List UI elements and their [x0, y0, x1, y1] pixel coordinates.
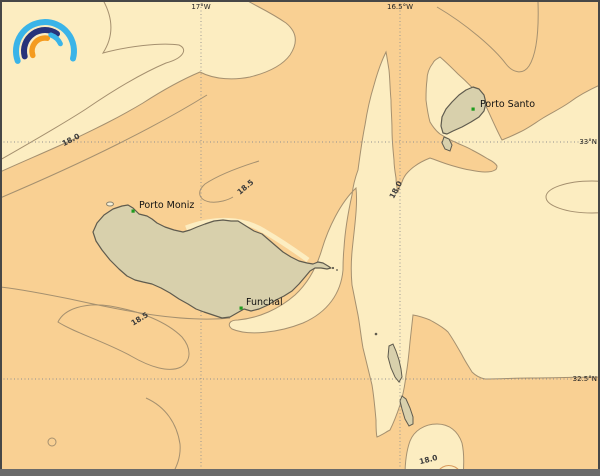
parallel-label-32-5n: 32.5°N	[573, 375, 597, 383]
porto-moniz-marker	[132, 210, 135, 213]
desertas-islet-dot	[375, 333, 378, 336]
funchal-label: Funchal	[246, 297, 283, 308]
ponta-islet-2	[336, 269, 338, 271]
sst-map: Porto Santo Porto Moniz Funchal 18.0 18.…	[0, 0, 600, 476]
ponta-islet-1	[332, 267, 334, 269]
map-canvas: Porto Santo Porto Moniz Funchal 18.0 18.…	[0, 0, 600, 476]
porto-moniz-label: Porto Moniz	[139, 200, 194, 211]
meridian-label-17w: 17°W	[191, 3, 210, 11]
islet-northwest	[107, 202, 114, 206]
funchal-marker	[240, 307, 243, 310]
porto-santo-marker	[472, 108, 475, 111]
meridian-label-16-5w: 16.5°W	[387, 3, 413, 11]
porto-santo-label: Porto Santo	[480, 99, 535, 110]
parallel-label-33n: 33°N	[579, 138, 597, 146]
